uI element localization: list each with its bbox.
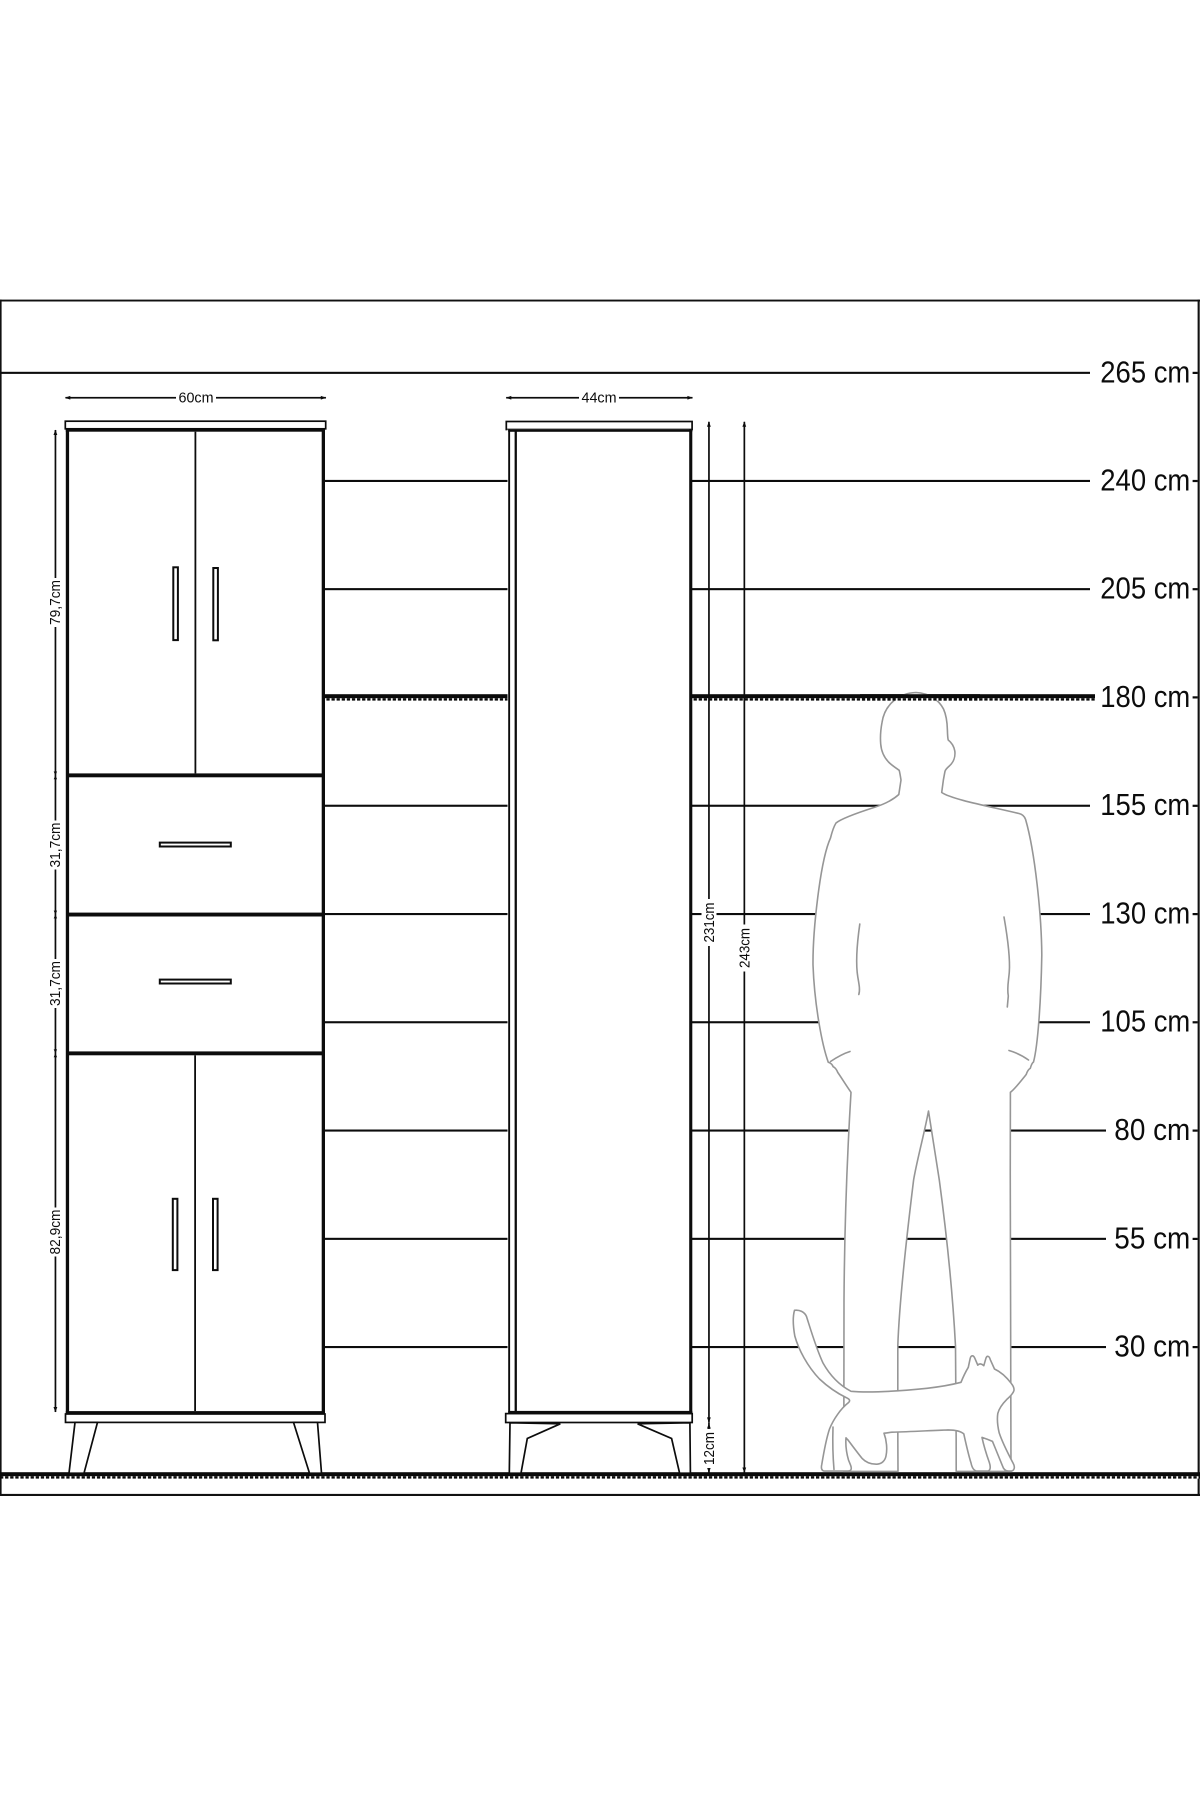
svg-text:265 cm: 265 cm [1100,355,1190,389]
svg-text:31,7cm: 31,7cm [48,961,64,1006]
svg-text:240 cm: 240 cm [1100,463,1190,497]
svg-text:205 cm: 205 cm [1100,572,1190,606]
svg-text:31,7cm: 31,7cm [48,823,64,868]
svg-text:30 cm: 30 cm [1114,1330,1190,1364]
svg-text:243cm: 243cm [737,928,753,968]
svg-text:80 cm: 80 cm [1114,1113,1190,1147]
svg-text:82,9cm: 82,9cm [48,1210,64,1255]
svg-text:155 cm: 155 cm [1100,788,1190,822]
svg-text:105 cm: 105 cm [1100,1005,1190,1039]
svg-text:12cm: 12cm [702,1432,718,1465]
svg-text:60cm: 60cm [179,391,214,407]
svg-text:44cm: 44cm [582,391,617,407]
svg-text:180 cm: 180 cm [1100,680,1190,714]
svg-text:79,7cm: 79,7cm [48,580,64,625]
svg-text:130 cm: 130 cm [1100,897,1190,931]
svg-text:55 cm: 55 cm [1114,1221,1190,1255]
svg-text:231cm: 231cm [702,903,718,943]
